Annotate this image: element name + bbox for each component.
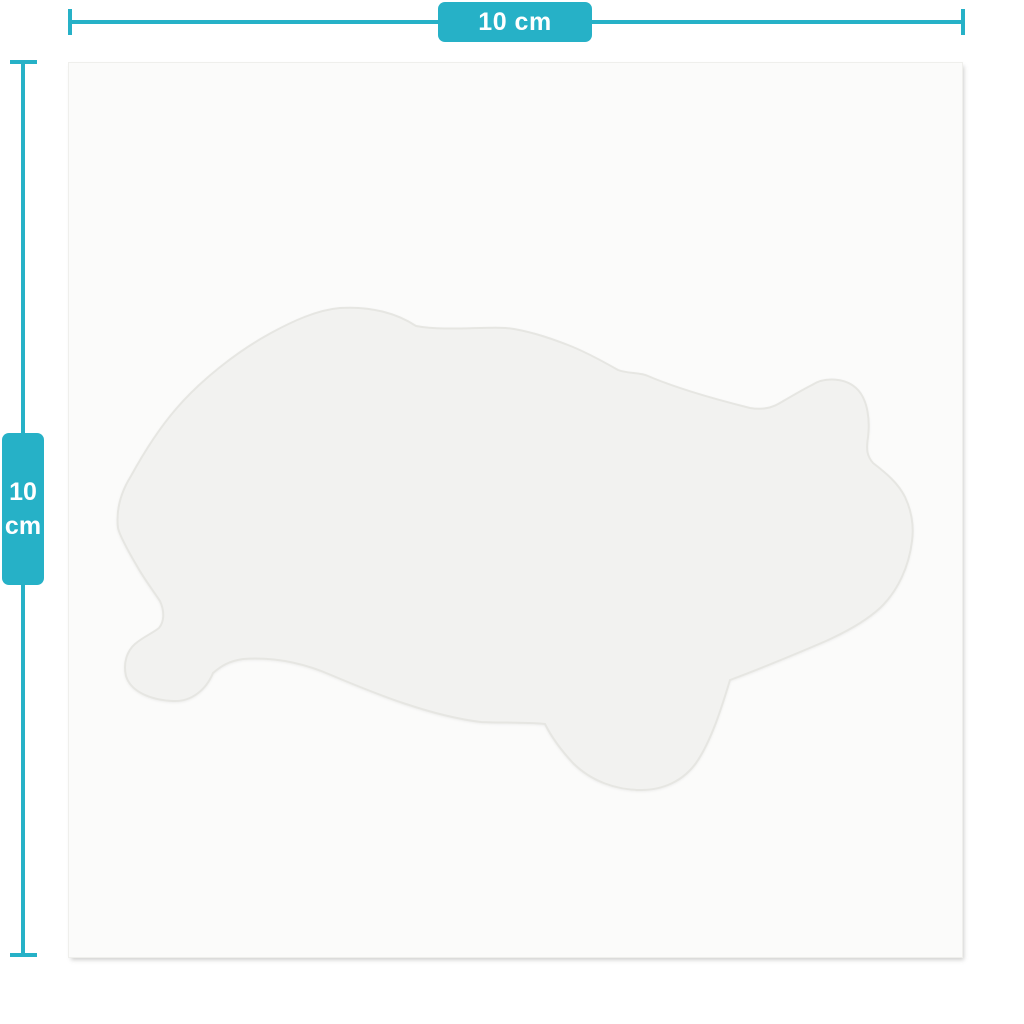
vertical-dimension-label: 10 cm bbox=[2, 433, 44, 585]
horizontal-dimension-label: 10 cm bbox=[438, 2, 592, 42]
horizontal-ruler-right-tick-icon bbox=[961, 9, 965, 35]
vertical-dimension-value: 10 bbox=[9, 475, 37, 509]
vertical-dimension-unit: cm bbox=[5, 509, 41, 543]
page-background: 10 cm 10 cm bbox=[0, 0, 1024, 1024]
vertical-ruler-bottom-tick-icon bbox=[10, 953, 37, 957]
horizontal-ruler-left-tick-icon bbox=[68, 9, 72, 35]
product-canvas bbox=[68, 62, 963, 958]
vertical-ruler-top-tick-icon bbox=[10, 60, 37, 64]
